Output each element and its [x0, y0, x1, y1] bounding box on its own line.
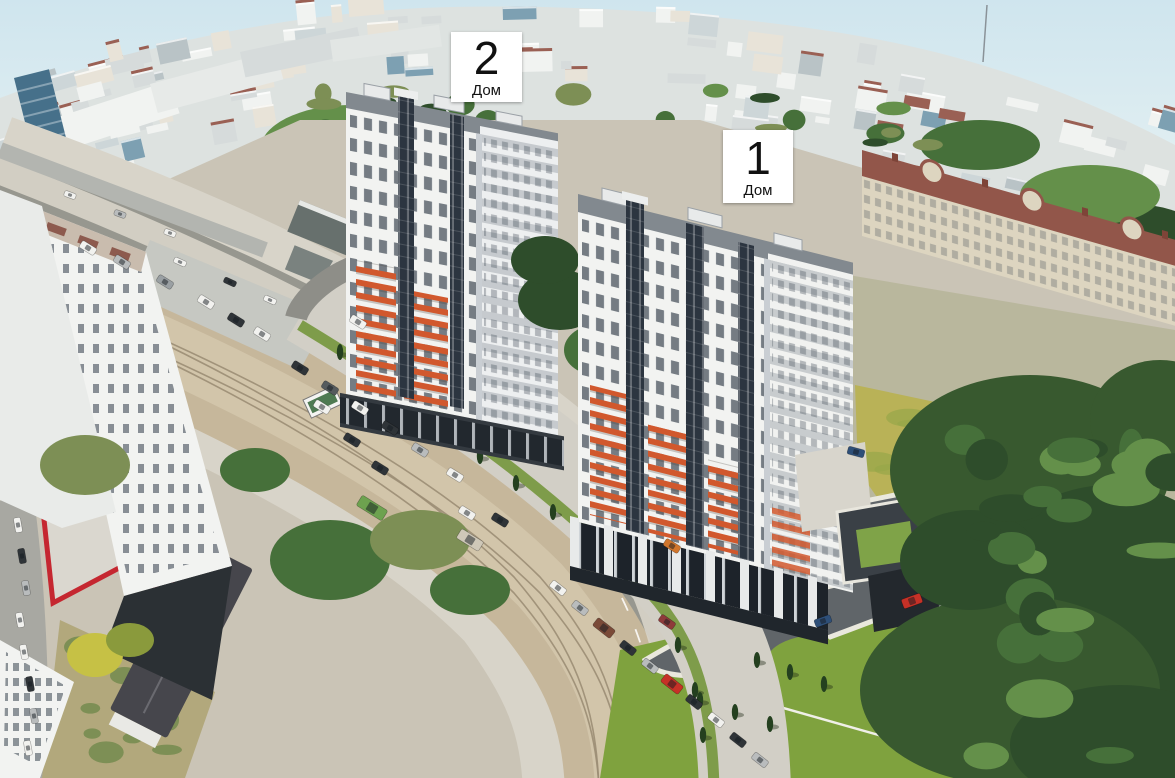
city-block	[210, 118, 237, 145]
city-block	[295, 0, 316, 25]
tree-canopy	[876, 102, 910, 116]
city-block	[670, 10, 690, 22]
city-block	[704, 104, 717, 122]
city-block	[252, 104, 277, 128]
city-block	[331, 4, 343, 23]
city-block	[386, 56, 404, 75]
tree-canopy	[1086, 747, 1134, 764]
city-block	[421, 16, 441, 25]
city-block	[503, 6, 537, 20]
cypress-tree	[675, 637, 681, 653]
cypress-tree	[700, 727, 706, 743]
tree-canopy	[80, 703, 100, 714]
aerial-rendering-photo: 2 Дом 1 Дом	[0, 0, 1175, 778]
tree-canopy	[89, 741, 124, 763]
house-2-caption: Дом	[472, 83, 501, 99]
tree-canopy	[1036, 608, 1094, 632]
tree-canopy	[40, 435, 130, 495]
city-block	[727, 41, 743, 57]
tree-canopy	[511, 236, 579, 284]
tree-canopy	[1006, 679, 1073, 718]
city-block	[688, 13, 719, 38]
cypress-tree	[732, 704, 738, 720]
cypress-tree	[754, 652, 760, 668]
tree-canopy	[430, 565, 510, 615]
tree-canopy	[966, 439, 1009, 480]
tree-canopy	[84, 728, 101, 738]
cypress-tree	[337, 344, 343, 360]
city-block	[667, 73, 705, 84]
city-block	[211, 30, 232, 51]
house-2-number: 2	[474, 35, 500, 81]
tree-canopy	[703, 84, 728, 98]
house-1-caption: Дом	[744, 183, 773, 199]
tree-canopy	[106, 623, 154, 657]
cypress-tree	[787, 664, 793, 680]
scene-svg	[0, 0, 1175, 778]
tree-canopy	[306, 98, 341, 110]
city-block	[407, 53, 428, 66]
cypress-tree	[550, 504, 556, 520]
cypress-tree	[513, 475, 519, 491]
tree-canopy	[1046, 499, 1091, 523]
house-2-label: 2 Дом	[451, 32, 522, 102]
tree-canopy	[370, 510, 470, 570]
tree-canopy	[881, 127, 901, 137]
city-block	[857, 43, 878, 65]
tree-canopy	[152, 745, 182, 755]
house-1-label: 1 Дом	[723, 130, 793, 203]
cypress-tree	[821, 676, 827, 692]
city-block	[561, 61, 572, 69]
tree-canopy	[750, 93, 780, 103]
tree-canopy	[963, 743, 1009, 770]
house-1-number: 1	[745, 135, 771, 181]
city-block	[798, 50, 824, 76]
tree-canopy	[220, 448, 290, 492]
cypress-tree	[767, 716, 773, 732]
city-block	[405, 67, 433, 77]
tree-canopy	[555, 83, 591, 106]
tree-canopy	[967, 522, 1001, 541]
tree-canopy	[1047, 437, 1099, 463]
city-block	[348, 0, 385, 17]
tree-canopy	[862, 138, 888, 146]
city-block	[579, 9, 603, 27]
tree-canopy	[913, 139, 943, 151]
city-block	[776, 72, 796, 90]
